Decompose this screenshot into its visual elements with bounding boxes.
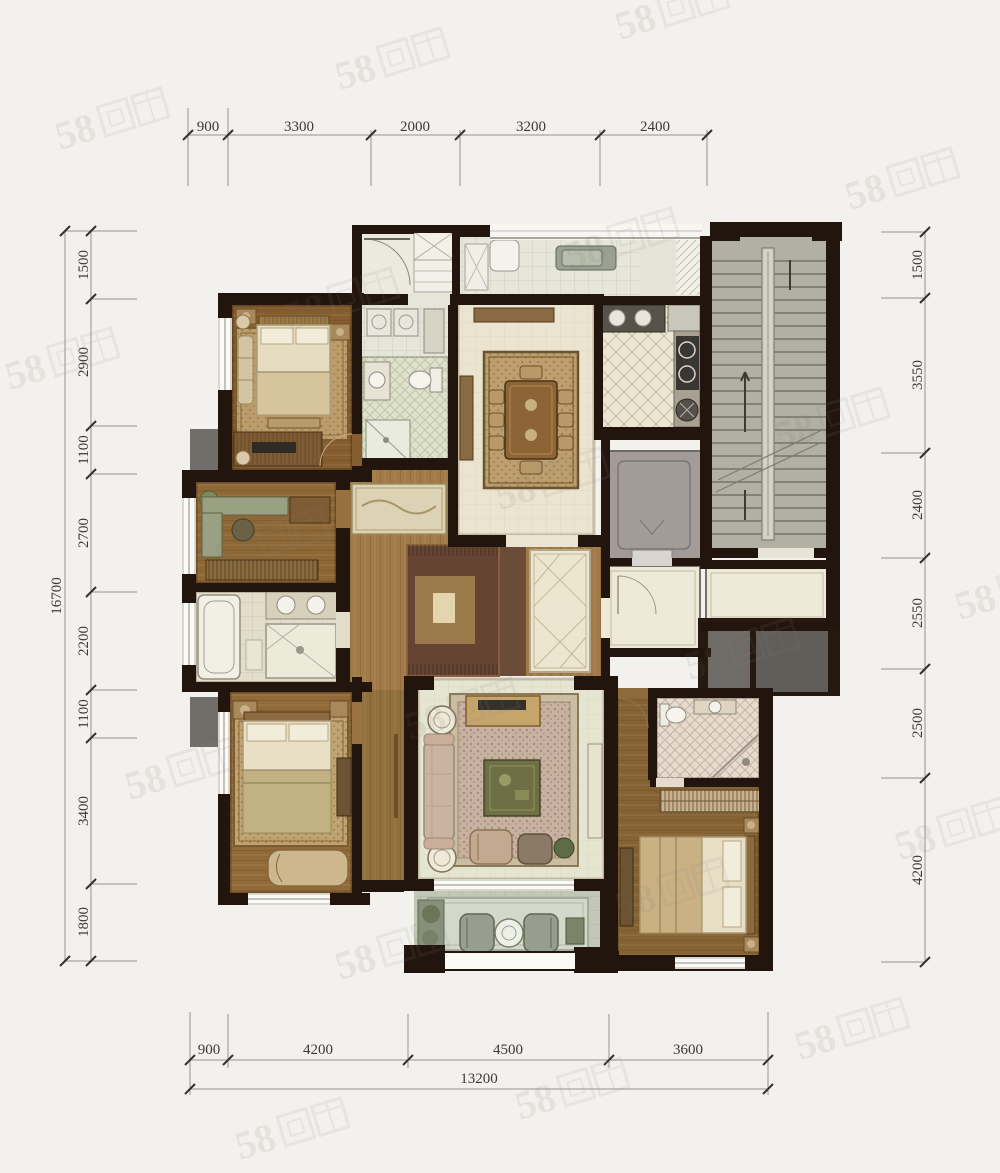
svg-text:1100: 1100: [76, 699, 92, 728]
svg-text:2700: 2700: [76, 518, 92, 548]
svg-text:3400: 3400: [76, 796, 92, 826]
svg-text:3600: 3600: [673, 1042, 703, 1058]
svg-text:2400: 2400: [910, 490, 926, 520]
svg-text:4500: 4500: [493, 1042, 523, 1058]
svg-text:2400: 2400: [640, 119, 670, 135]
svg-text:2000: 2000: [400, 119, 430, 135]
svg-text:4200: 4200: [303, 1042, 333, 1058]
svg-text:2200: 2200: [76, 626, 92, 656]
svg-text:900: 900: [198, 1042, 221, 1058]
svg-text:3200: 3200: [516, 119, 546, 135]
svg-text:1500: 1500: [910, 250, 926, 280]
svg-text:2500: 2500: [910, 708, 926, 738]
svg-text:900: 900: [197, 119, 220, 135]
svg-text:1800: 1800: [76, 907, 92, 937]
svg-text:1500: 1500: [76, 250, 92, 280]
svg-text:3550: 3550: [910, 360, 926, 390]
svg-text:2550: 2550: [910, 598, 926, 628]
svg-text:1100: 1100: [76, 435, 92, 464]
svg-text:16700: 16700: [49, 577, 65, 615]
svg-text:3300: 3300: [284, 119, 314, 135]
svg-text:13200: 13200: [460, 1071, 498, 1087]
